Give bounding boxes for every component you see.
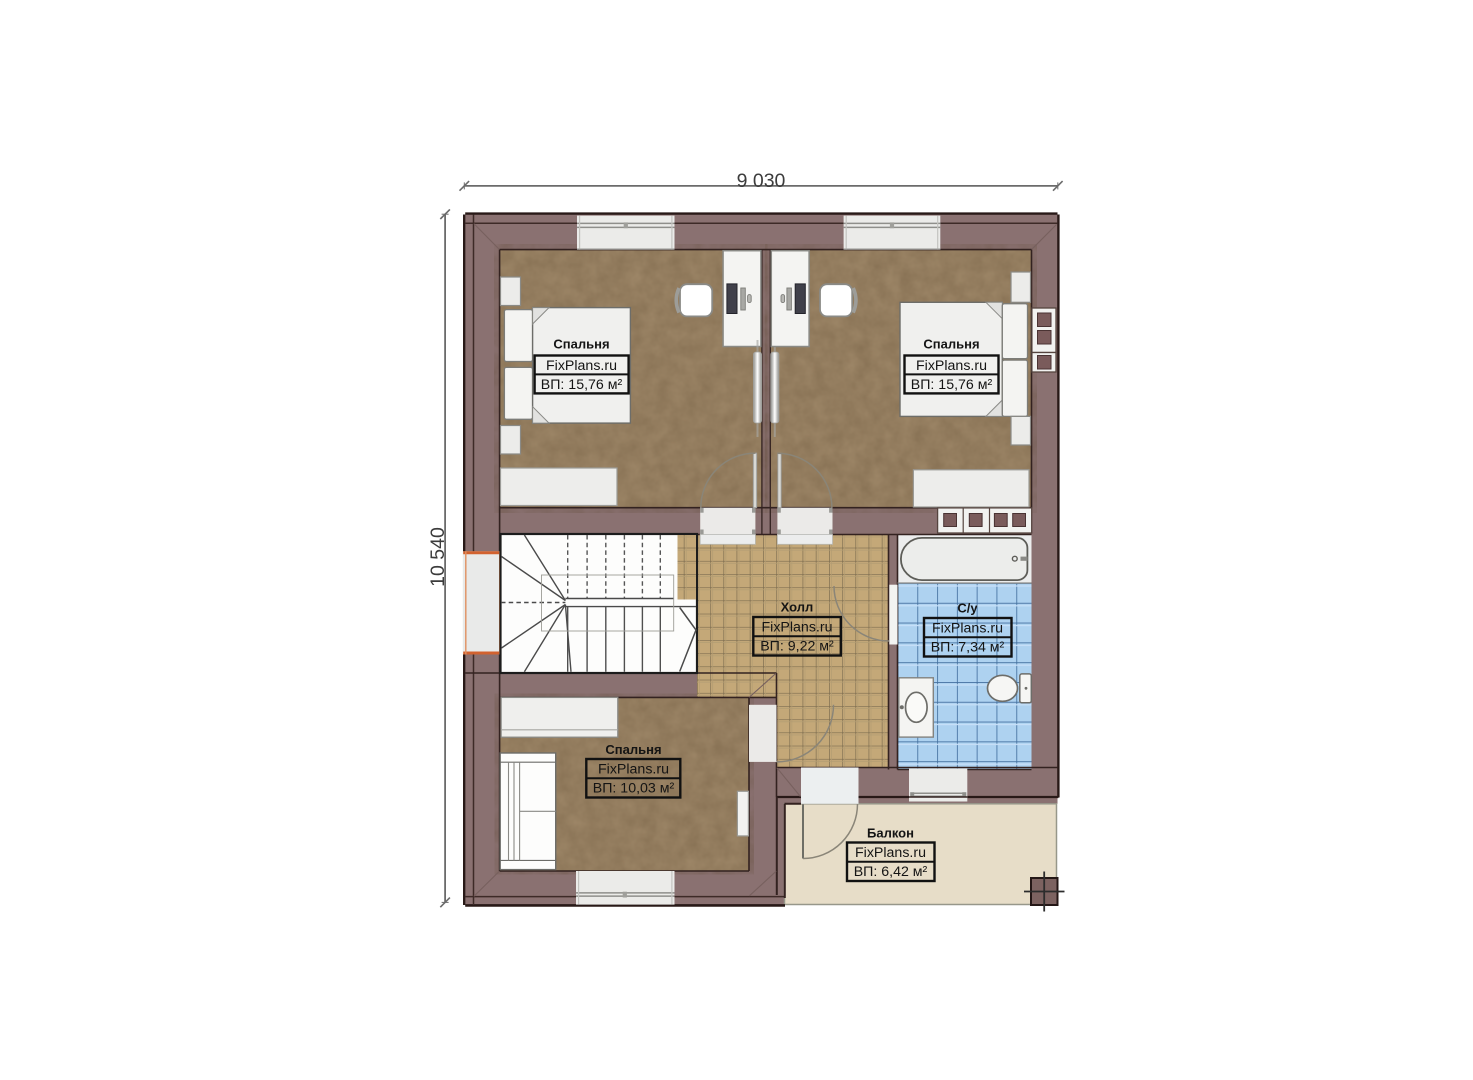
svg-text:ВП: 15,76 м²: ВП: 15,76 м²: [911, 377, 993, 393]
svg-text:ВП: 6,42 м²: ВП: 6,42 м²: [854, 864, 928, 880]
svg-text:Холл: Холл: [781, 600, 814, 615]
svg-text:С/у: С/у: [957, 601, 978, 616]
svg-text:FixPlans.ru: FixPlans.ru: [916, 358, 987, 374]
svg-text:Спальня: Спальня: [553, 337, 609, 352]
svg-text:FixPlans.ru: FixPlans.ru: [932, 621, 1003, 637]
svg-text:FixPlans.ru: FixPlans.ru: [546, 358, 617, 374]
svg-text:FixPlans.ru: FixPlans.ru: [762, 620, 833, 636]
svg-text:Балкон: Балкон: [867, 826, 914, 841]
svg-text:FixPlans.ru: FixPlans.ru: [598, 762, 669, 778]
svg-text:ВП: 7,34 м²: ВП: 7,34 м²: [931, 640, 1005, 656]
svg-text:9 030: 9 030: [737, 170, 786, 192]
svg-text:Спальня: Спальня: [923, 337, 979, 352]
svg-text:ВП: 9,22 м²: ВП: 9,22 м²: [760, 639, 834, 655]
svg-text:ВП: 10,03 м²: ВП: 10,03 м²: [593, 781, 675, 797]
svg-text:10 540: 10 540: [427, 527, 449, 587]
svg-text:FixPlans.ru: FixPlans.ru: [855, 845, 926, 861]
svg-text:Спальня: Спальня: [605, 742, 661, 757]
svg-text:ВП: 15,76 м²: ВП: 15,76 м²: [541, 377, 623, 393]
